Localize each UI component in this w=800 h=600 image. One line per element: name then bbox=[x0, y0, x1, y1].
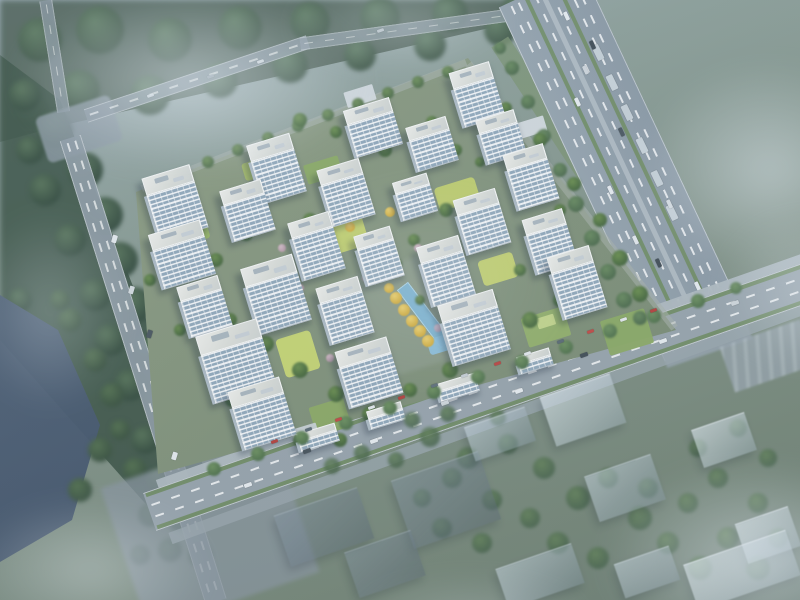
scene-layer bbox=[0, 0, 800, 600]
sunlight-glow bbox=[220, 120, 640, 440]
future-phase-trees-tree bbox=[388, 452, 404, 468]
future-phase-trees-tree bbox=[533, 457, 555, 479]
aerial-rendering bbox=[0, 0, 800, 600]
future-phase-trees-tree bbox=[354, 445, 370, 461]
future-phase-trees-tree bbox=[324, 458, 340, 474]
future-phase-trees-tree bbox=[472, 533, 492, 553]
future-phase-trees-tree bbox=[520, 508, 540, 528]
